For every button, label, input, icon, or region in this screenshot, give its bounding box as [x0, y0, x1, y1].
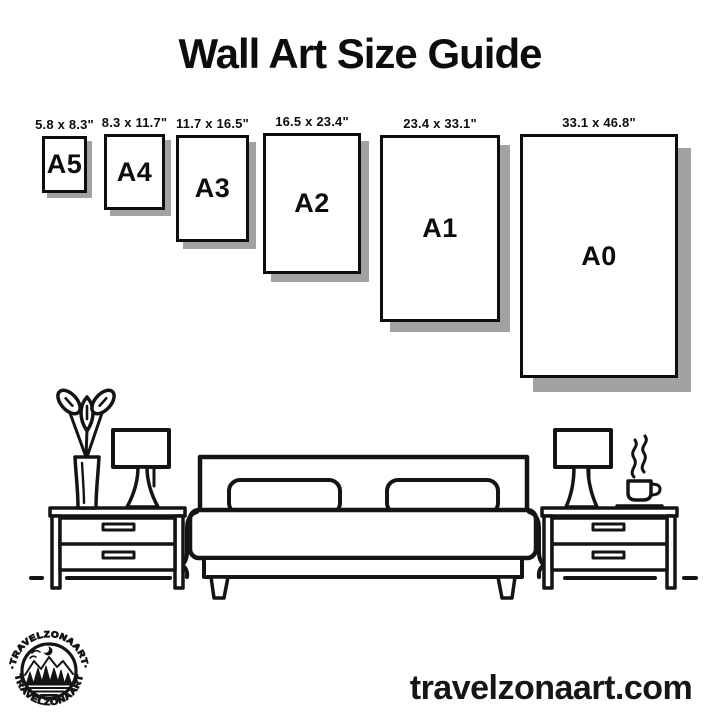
steam: [632, 440, 636, 477]
table-lamp-left-icon: [113, 430, 169, 507]
coffee-cup-icon: [617, 436, 662, 506]
wall-art-size-guide-poster: Wall Art Size Guide 5.8 x 8.3" A5 8.3 x …: [0, 0, 720, 720]
drawer-handle: [103, 524, 134, 530]
bedroom-illustration: ·TRAVELZONAART· TRAVELZONAART: [0, 0, 720, 720]
website-url: travelzonaart.com: [410, 671, 693, 705]
double-bed-icon: [182, 457, 544, 598]
steam: [642, 436, 646, 472]
drawer-handle: [593, 552, 624, 558]
vase: [75, 457, 99, 508]
drawer-handle: [593, 524, 624, 530]
potted-plant-icon: [54, 386, 119, 508]
drawer-handle: [103, 552, 134, 558]
table-lamp-right-icon: [555, 430, 611, 507]
brand-logo: ·TRAVELZONAART· TRAVELZONAART: [7, 629, 91, 707]
